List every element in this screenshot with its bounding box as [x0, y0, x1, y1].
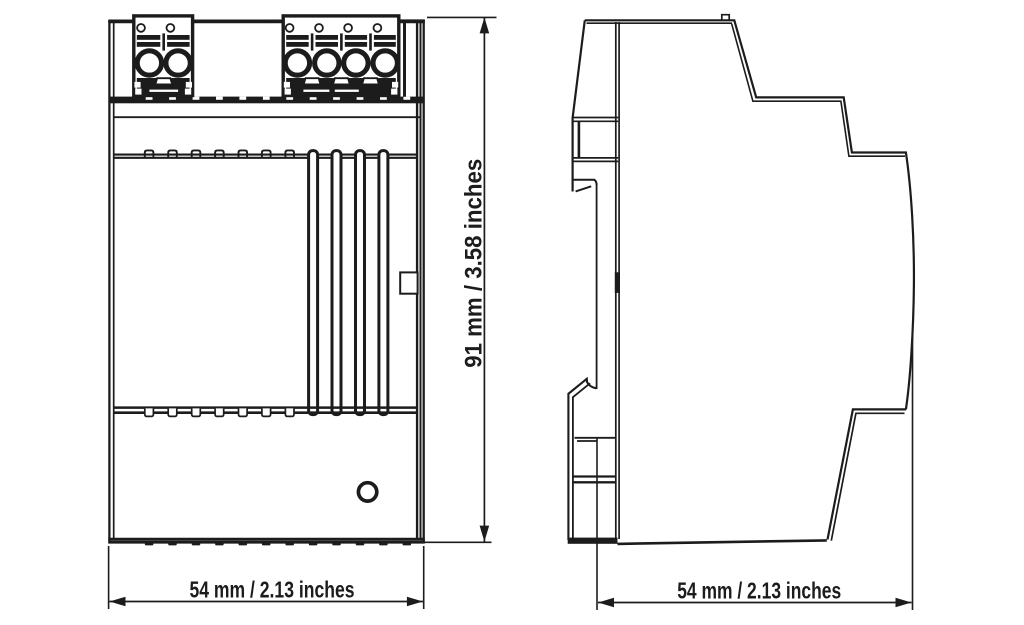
svg-text:54 mm / 2.13 inches: 54 mm / 2.13 inches — [677, 577, 841, 603]
svg-text:91 mm / 3.58 inches: 91 mm / 3.58 inches — [460, 159, 487, 368]
svg-text:54 mm / 2.13 inches: 54 mm / 2.13 inches — [190, 577, 355, 603]
